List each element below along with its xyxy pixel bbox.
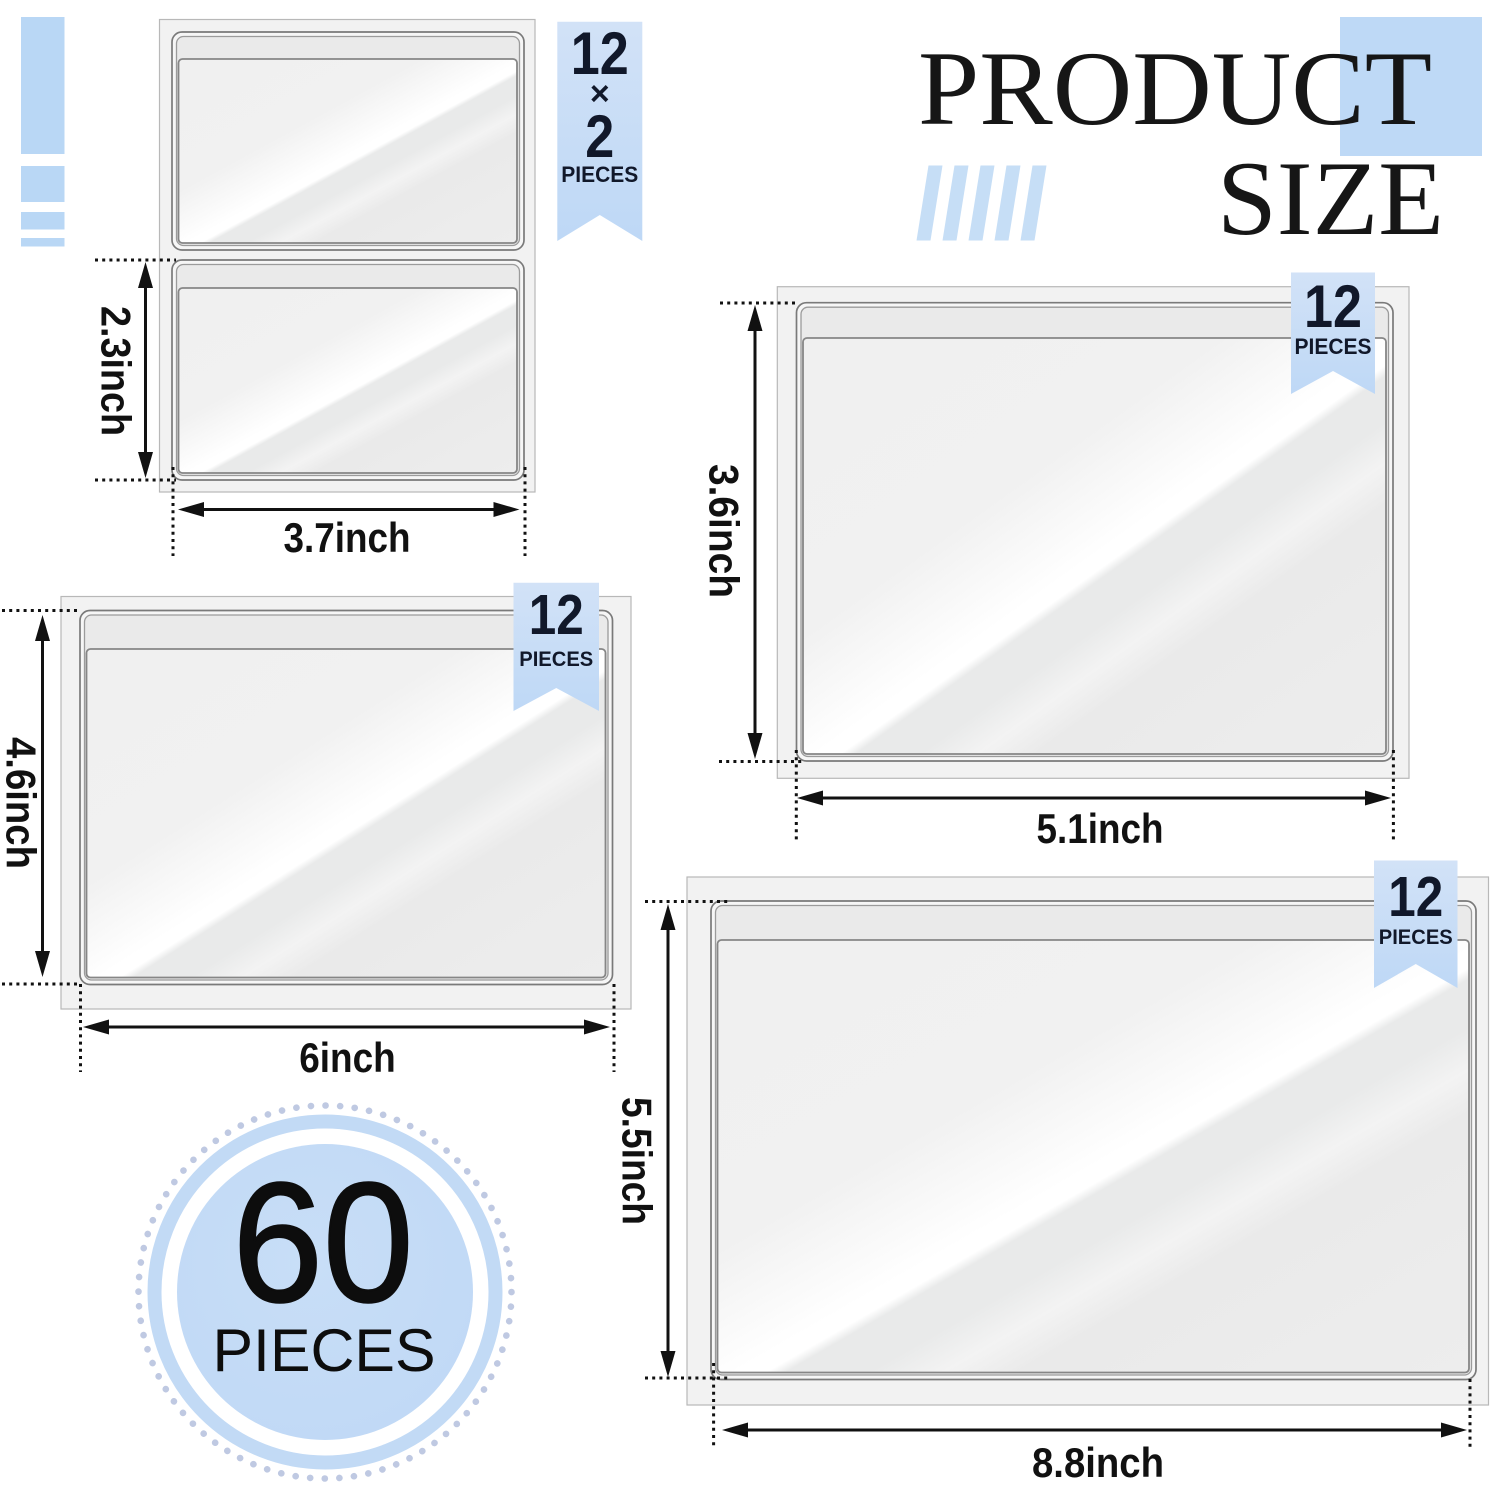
svg-text:12: 12 [1388,865,1443,929]
svg-text:12: 12 [1304,273,1362,340]
svg-text:3.6inch: 3.6inch [701,464,748,598]
svg-text:PIECES: PIECES [1379,924,1453,949]
svg-text:5.5inch: 5.5inch [614,1097,661,1225]
svg-text:PIECES: PIECES [519,646,593,671]
svg-text:8.8inch: 8.8inch [1032,1439,1164,1486]
svg-text:2: 2 [585,103,614,170]
svg-text:PIECES: PIECES [1295,334,1372,359]
svg-text:PRODUCT: PRODUCT [918,30,1432,147]
svg-text:2.3inch: 2.3inch [93,306,140,436]
svg-text:PIECES: PIECES [561,162,638,187]
svg-text:PIECES: PIECES [213,1317,436,1384]
svg-text:60: 60 [233,1148,414,1338]
svg-text:5.1inch: 5.1inch [1037,805,1164,852]
svg-text:4.6inch: 4.6inch [0,737,45,869]
svg-text:6inch: 6inch [299,1034,396,1081]
svg-text:12: 12 [529,583,584,647]
svg-text:SIZE: SIZE [1217,140,1444,257]
svg-text:3.7inch: 3.7inch [284,514,411,561]
